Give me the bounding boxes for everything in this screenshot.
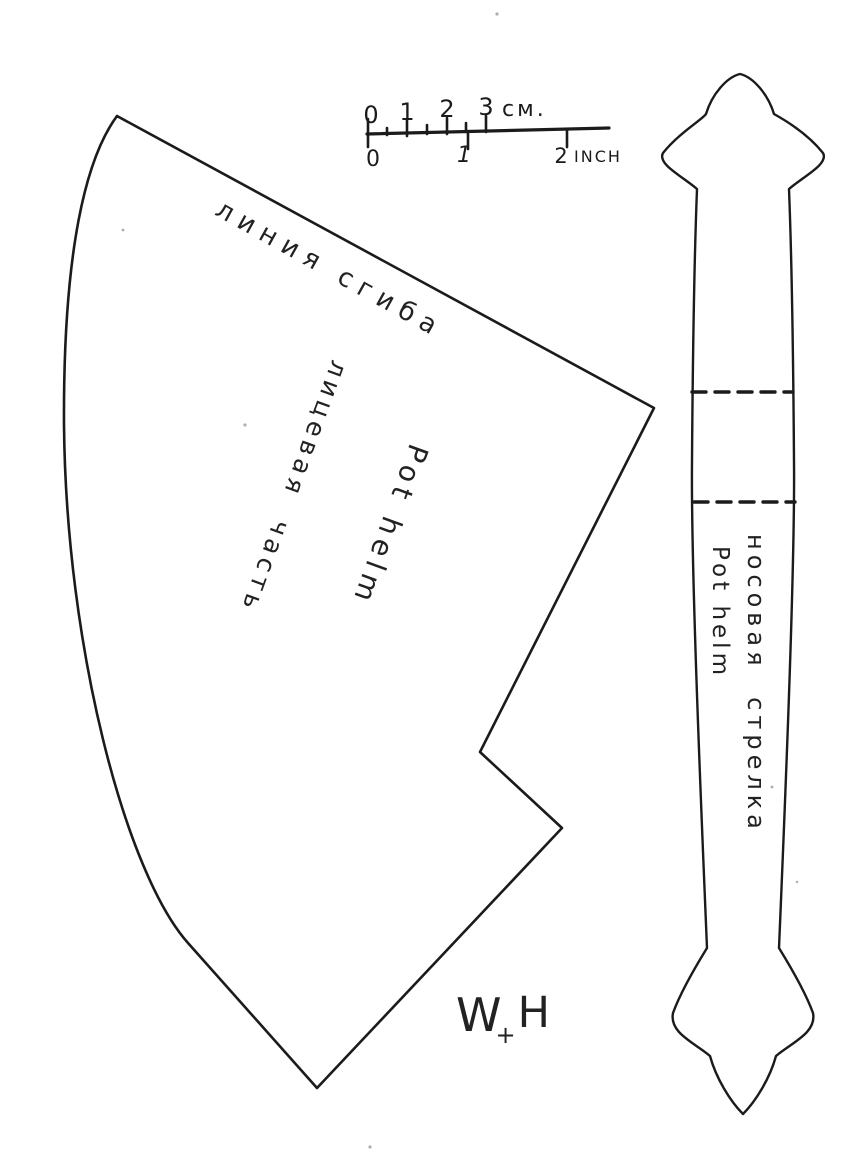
nasal-bar-label-latin: Pot helm <box>708 546 731 679</box>
ruler-cm-label-0: 0 <box>363 101 378 129</box>
ruler-inch-unit-label: INCH <box>574 147 622 166</box>
author-signature: W+H <box>456 988 554 1042</box>
ruler-inch-label-1: 1 <box>457 143 471 168</box>
ruler-cm-unit-label: см. <box>502 97 547 122</box>
ruler-cm-label-2: 2 <box>439 95 454 123</box>
nasal-bar-label-cyrillic: носовая стрелка <box>744 534 768 834</box>
ruler-cm-label-1: 1 <box>399 98 414 126</box>
ruler-inch-label-0: 0 <box>366 147 380 172</box>
ruler-baseline <box>367 128 609 134</box>
signature-plus: + <box>495 1021 515 1049</box>
ruler-cm-label-3: 3 <box>478 93 493 121</box>
scan-specks <box>122 12 799 1148</box>
ruler-inch-label-2: 2 <box>554 144 567 168</box>
signature-letter-h: H <box>518 988 550 1038</box>
pattern-scan-page: линия сгиба Pot helm лицевая часть носов… <box>0 0 850 1169</box>
